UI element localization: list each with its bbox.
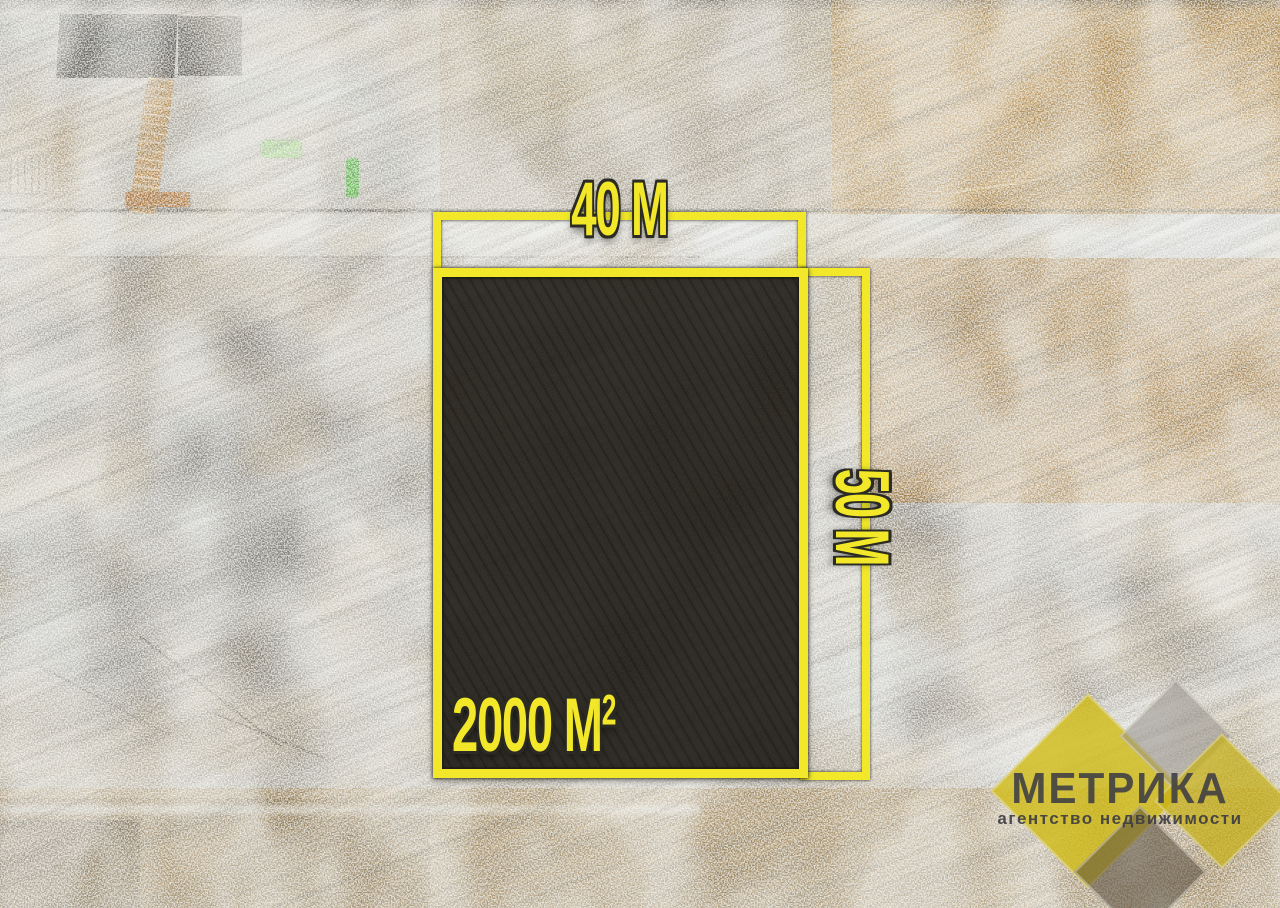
logo-tagline-text: агентство недвижимости	[960, 810, 1280, 827]
agency-logo: МЕТРИКА агентство недвижимости	[960, 650, 1280, 908]
area-superscript: 2	[602, 687, 615, 735]
logo-brand-text: МЕТРИКА	[966, 767, 1273, 811]
area-value: 2000 М	[452, 683, 602, 768]
area-label: 2000 М2	[452, 688, 615, 764]
aerial-photo-listing: 40 М 50 М 2000 М2 МЕТРИКА агентство недв…	[0, 0, 1280, 908]
height-dimension-label: 50 М	[823, 466, 899, 568]
width-dimension-label: 40 М	[508, 172, 732, 248]
